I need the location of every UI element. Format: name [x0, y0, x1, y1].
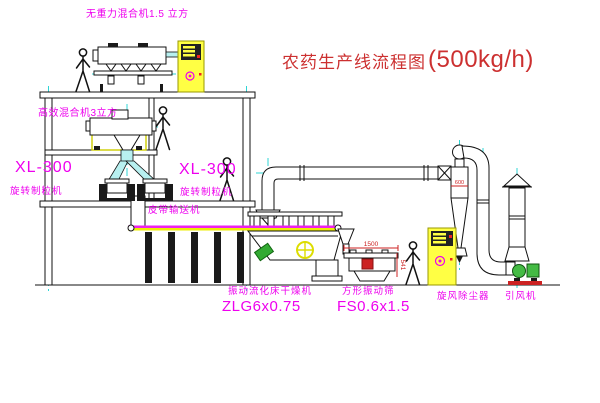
cyclone-outlet-duct: [462, 146, 506, 275]
worker-figure-4: [406, 242, 420, 285]
diagram-title: 农药生产线流程图 (500kg/h): [282, 46, 534, 74]
fluid-bed-dryer: [248, 210, 342, 226]
gravity-free-mixer: [93, 43, 178, 92]
dim-1500: 1500: [364, 241, 379, 248]
vibrating-screen: 1500 541: [344, 241, 406, 281]
belt-conveyor: [128, 225, 341, 231]
rotary-granulator-left: [99, 179, 135, 201]
label-high-efficiency-mixer: 高效混合机3立方: [38, 109, 118, 119]
exhaust-duct: [262, 165, 438, 210]
label-granulator-mid-model: XL-300: [179, 162, 237, 178]
control-cabinet-upper: [178, 41, 204, 92]
dim-541: 541: [399, 260, 406, 271]
label-granulator-mid-name: 旋转制粒机: [180, 188, 233, 198]
process-flow-diagram: 1500 541 600: [0, 0, 600, 403]
worker-figure-2: [156, 107, 170, 150]
exhaust-stack: [502, 174, 532, 261]
label-dryer-model: ZLG6x0.75: [222, 299, 301, 314]
label-belt-conveyor: 皮带输送机: [148, 206, 201, 216]
control-cabinet-lower: [428, 228, 456, 285]
dim-600: 600: [455, 180, 464, 186]
title-chinese: 农药生产线流程图: [282, 48, 426, 73]
label-dryer-name: 振动流化床干燥机: [228, 287, 312, 297]
induced-draft-fan: [506, 262, 542, 285]
rotary-granulator-right: [137, 179, 173, 201]
label-screen-name: 方形振动筛: [342, 287, 395, 297]
label-fan: 引风机: [505, 292, 537, 302]
label-granulator-left-model: XL-300: [15, 160, 73, 176]
label-gravity-free-mixer: 无重力混合机1.5 立方: [86, 10, 189, 20]
label-granulator-left-name: 旋转制粒机: [10, 187, 63, 197]
fluid-bed-dryer-body: [248, 231, 342, 281]
label-screen-model: FS0.6x1.5: [337, 299, 410, 314]
title-capacity: (500kg/h): [428, 46, 534, 74]
label-cyclone: 旋风除尘器: [437, 292, 490, 302]
conveyor-pit-legs: [145, 232, 244, 283]
worker-figure-1: [76, 49, 90, 92]
